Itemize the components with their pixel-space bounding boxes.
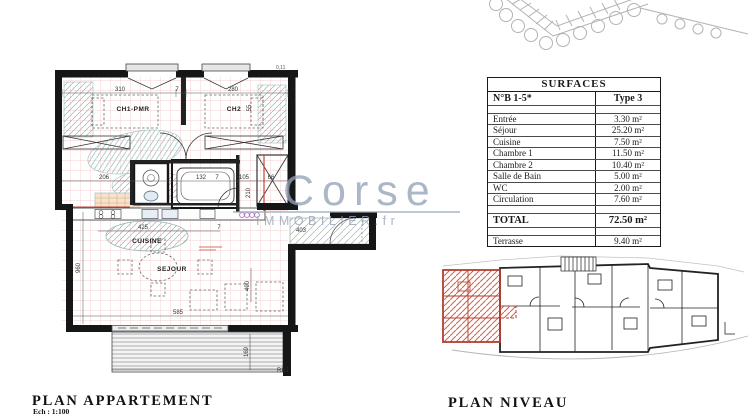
site-sketch	[490, 0, 749, 50]
terrace	[112, 332, 291, 376]
dim-403: 403	[296, 228, 307, 234]
type-label: Type 3	[595, 92, 660, 105]
room-label-sejour: SEJOUR	[157, 266, 187, 273]
table-row: Chambre 1 11.50 m²	[488, 148, 660, 160]
plan-niveau	[443, 256, 748, 359]
dim-425: 425	[138, 225, 149, 231]
dim-210: 210	[246, 187, 252, 198]
corner-label-rdj: RDJ	[277, 368, 289, 374]
unit-label: N°B 1-5*	[488, 92, 595, 105]
table-row: Salle de Bain 5.00 m²	[488, 171, 660, 183]
dim-310: 310	[115, 87, 126, 93]
window-ch2	[202, 64, 250, 71]
window-ch1	[126, 64, 178, 71]
table-total-row: TOTAL 72.50 m²	[488, 214, 660, 228]
dim-960: 960	[76, 262, 82, 273]
stairs	[561, 257, 596, 271]
table-spacer-row	[488, 106, 660, 114]
plan-niveau-title: PLAN NIVEAU	[448, 395, 568, 412]
dim-66: 66	[268, 175, 275, 181]
dim-280: 280	[228, 87, 239, 93]
building-outline	[500, 257, 718, 352]
watermark-suffix: IMMOBILIER.fr	[256, 214, 399, 228]
scale-label: Ech : 1:100	[33, 407, 69, 416]
plan-sheet: CH1-PMR CH2 CUISINE SEJOUR 310 7 280 55 …	[0, 0, 750, 420]
table-spacer-row	[488, 206, 660, 214]
table-row: Entrée 3.30 m²	[488, 114, 660, 126]
table-spacer-row	[488, 228, 660, 236]
room-label-ch2: CH2	[227, 106, 242, 113]
dim-169: 169	[244, 346, 250, 357]
dim-400: 400	[245, 280, 251, 291]
table-terrace-row: Terrasse 9.40 m²	[488, 236, 660, 247]
dim-55: 55	[247, 104, 253, 111]
table-row: WC 2.00 m²	[488, 183, 660, 195]
surfaces-table: SURFACES N°B 1-5* Type 3 Entrée 3.30 m² …	[487, 77, 661, 247]
table-row: Cuisine 7.50 m²	[488, 137, 660, 149]
room-label-ch1: CH1-PMR	[116, 106, 149, 113]
dim-132: 132	[196, 175, 207, 181]
dim-105: 105	[239, 175, 250, 181]
dim-585: 585	[173, 310, 184, 316]
table-title: SURFACES	[488, 78, 660, 92]
table-row: Chambre 2 10.40 m²	[488, 160, 660, 172]
dim-206: 206	[99, 175, 110, 181]
table-header-row: N°B 1-5* Type 3	[488, 92, 660, 106]
room-label-cuisine: CUISINE	[132, 238, 162, 245]
level-mark: 0,11	[276, 65, 286, 71]
table-row: Circulation 7.60 m²	[488, 194, 660, 206]
watermark-brand: Corse	[283, 170, 438, 213]
table-row: Séjour 25.20 m²	[488, 125, 660, 137]
toilet	[144, 191, 158, 201]
